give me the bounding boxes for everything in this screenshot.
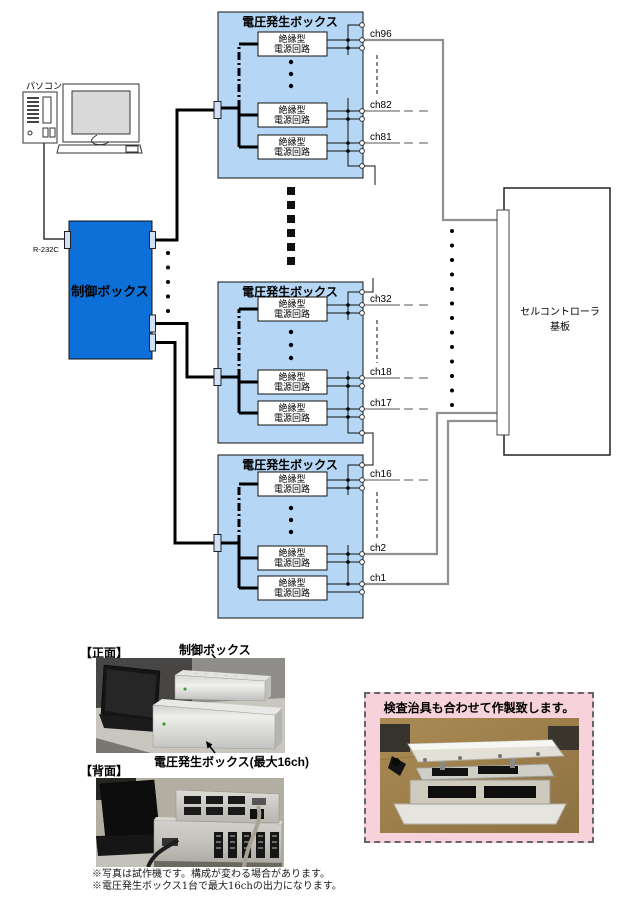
circuit-label: 電源回路 — [274, 114, 310, 125]
circuit-label: 絶縁型 — [278, 136, 305, 147]
footnotes: ※写真は試作機です。構成が変わる場合があります。 ※電圧発生ボックス1台で最大1… — [92, 869, 342, 893]
circuit-label: 絶縁型 — [278, 473, 305, 484]
pc-illustration: パソコン — [23, 81, 142, 239]
svg-text:絶縁型: 絶縁型 — [278, 473, 305, 484]
svg-text:絶縁型: 絶縁型 — [278, 104, 305, 115]
circuit-label: 絶縁型 — [278, 547, 305, 558]
voltage-box-rear — [148, 817, 282, 867]
channel-label-ch81: ch81 — [370, 132, 392, 143]
pc-label: パソコン — [26, 81, 62, 91]
channel-label-ch82: ch82 — [370, 100, 392, 111]
circuit-label: 絶縁型 — [278, 33, 305, 44]
svg-text:絶縁型: 絶縁型 — [278, 577, 305, 588]
controller-label: 基板 — [550, 320, 570, 333]
svg-text:電源回路: 電源回路 — [274, 308, 310, 319]
controller-ellipsis — [450, 229, 454, 407]
channel-label-ch16: ch16 — [370, 469, 392, 480]
circuit-label: 電源回路 — [274, 587, 310, 598]
svg-text:電源回路: 電源回路 — [274, 146, 310, 157]
control-box-label: 制御ボックス — [71, 284, 149, 299]
svg-text:電源回路: 電源回路 — [274, 557, 310, 568]
svg-text:絶縁型: 絶縁型 — [278, 402, 305, 413]
circuit-label: 絶縁型 — [278, 402, 305, 413]
board-connector-strip — [497, 210, 509, 435]
control-box: 制御ボックス — [69, 221, 152, 359]
omitted-boxes-marks — [287, 187, 295, 265]
control-cables — [156, 110, 215, 543]
caption-arrow-up — [202, 738, 218, 755]
circuit-label: 電源回路 — [274, 483, 310, 494]
note-line-2: ※電圧発生ボックス1台で最大16chの出力になります。 — [92, 881, 342, 893]
channel-label-ch17: ch17 — [370, 398, 392, 409]
back-section-label: 【背面】 — [80, 762, 128, 779]
controller-label: セルコントローラ — [520, 306, 600, 318]
circuit-label: 電源回路 — [274, 146, 310, 157]
circuit-label: 絶縁型 — [278, 371, 305, 382]
channel-label-ch32: ch32 — [370, 294, 392, 305]
pc-serial-wire — [44, 143, 64, 239]
circuit-label: 電源回路 — [274, 43, 310, 54]
circuit-label: 絶縁型 — [278, 577, 305, 588]
led-indicator — [162, 722, 165, 725]
circuit-label: 電源回路 — [274, 557, 310, 568]
circuit-label: 電源回路 — [274, 308, 310, 319]
jig-fixture — [388, 740, 566, 824]
channel-label-ch18: ch18 — [370, 367, 392, 378]
svg-text:電源回路: 電源回路 — [274, 43, 310, 54]
note-line-1: ※写真は試作機です。構成が変わる場合があります。 — [92, 869, 342, 881]
svg-text:絶縁型: 絶縁型 — [278, 136, 305, 147]
jig-photo — [380, 718, 579, 833]
channel-label-ch1: ch1 — [370, 573, 387, 584]
jig-banner: 検査治具も合わせて作製致します。 — [366, 699, 592, 716]
svg-text:絶縁型: 絶縁型 — [278, 298, 305, 309]
rs232c-label: R-232C — [33, 245, 59, 254]
page: パソコン R-232C 制御ボックス — [0, 0, 634, 901]
svg-text:電源回路: 電源回路 — [274, 412, 310, 423]
svg-text:絶縁型: 絶縁型 — [278, 33, 305, 44]
svg-text:絶縁型: 絶縁型 — [278, 547, 305, 558]
jig-panel: 検査治具も合わせて作製致します。 — [364, 692, 594, 843]
cell-controller-board: セルコントローラ 基板 — [497, 188, 610, 455]
led-indicator — [184, 688, 187, 691]
voltage-box-title: 電圧発生ボックス — [242, 14, 338, 29]
channel-label-ch96: ch96 — [370, 29, 392, 40]
svg-text:電源回路: 電源回路 — [274, 587, 310, 598]
circuit-label: 電源回路 — [274, 412, 310, 423]
chain-links — [364, 166, 375, 465]
control-box-dots — [166, 251, 170, 313]
channel-label-ch2: ch2 — [370, 543, 387, 554]
voltage-box-caption: 電圧発生ボックス(最大16ch) — [154, 753, 309, 770]
circuit-label: 絶縁型 — [278, 298, 305, 309]
system-diagram: パソコン R-232C 制御ボックス — [0, 0, 634, 630]
svg-text:電源回路: 電源回路 — [274, 114, 310, 125]
svg-text:電源回路: 電源回路 — [274, 483, 310, 494]
pc-tower — [23, 92, 57, 143]
controller-wires — [364, 40, 497, 584]
svg-text:電源回路: 電源回路 — [274, 381, 310, 392]
back-photo — [96, 778, 284, 867]
pc-monitor — [63, 84, 139, 142]
voltage-box-title: 電圧発生ボックス — [242, 457, 338, 472]
circuit-label: 電源回路 — [274, 381, 310, 392]
circuit-label: 絶縁型 — [278, 104, 305, 115]
front-photo — [96, 658, 285, 753]
svg-text:絶縁型: 絶縁型 — [278, 371, 305, 382]
